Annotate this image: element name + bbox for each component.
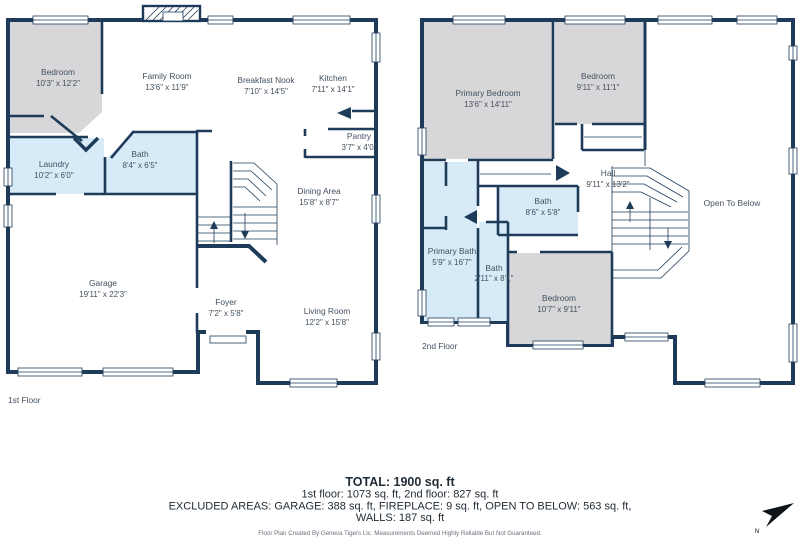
room-label: Dining Area <box>297 186 341 196</box>
room-dims: 8'6" x 5'8" <box>526 208 561 217</box>
front-door-opening <box>206 328 246 336</box>
room-label: Foyer <box>215 297 237 307</box>
walls-area-text: WALLS: 187 sq. ft <box>356 512 444 524</box>
area-summary: TOTAL: 1900 sq. ft 1st floor: 1073 sq. f… <box>169 475 632 537</box>
room-dims: 7'11" x 14'1" <box>311 85 354 94</box>
room-dims: 9'11" x 13'2" <box>586 180 629 189</box>
room-label: Kitchen <box>319 73 347 83</box>
room-dims: 13'6" x 11'9" <box>145 83 188 92</box>
first-floor-label: 1st Floor <box>8 395 41 405</box>
room-label: Primary Bedroom <box>455 88 520 98</box>
second-floor-label: 2nd Floor <box>422 341 458 351</box>
room-label: Garage <box>89 278 117 288</box>
room-label: Laundry <box>39 159 70 169</box>
door-arrow-kitchen <box>337 107 351 119</box>
front-step <box>210 336 246 343</box>
room-dims: 5'9" x 16'7" <box>432 258 472 267</box>
room-dims: 15'8" x 8'7" <box>299 198 339 207</box>
floor-plan-page: Bedroom 10'3" x 12'2" Family Room 13'6" … <box>0 0 800 542</box>
first-floor-plan: Bedroom 10'3" x 12'2" Family Room 13'6" … <box>4 6 380 405</box>
total-area-text: TOTAL: 1900 sq. ft <box>345 475 455 489</box>
floor-plan-canvas: Bedroom 10'3" x 12'2" Family Room 13'6" … <box>0 0 800 542</box>
room-dims: 12'2" x 15'8" <box>305 318 349 327</box>
room-label: Bath <box>131 149 149 159</box>
room-label: Family Room <box>142 71 191 81</box>
room-dims: 10'3" x 12'2" <box>36 79 80 88</box>
room-dims: 7'2" x 5'8" <box>209 309 244 318</box>
door-arrow-closet <box>556 165 570 181</box>
room-label: Pantry <box>347 131 372 141</box>
room-label: Bedroom <box>542 293 576 303</box>
room-dims: 13'6" x 14'11" <box>464 100 512 109</box>
second-floor-plan: Primary Bedroom 13'6" x 14'11" Bedroom 9… <box>418 16 797 387</box>
room-label: Bath <box>534 196 552 206</box>
credit-text: Floor Plan Created By Geneva Tigers Llc.… <box>258 530 542 537</box>
north-label: N <box>755 528 760 535</box>
room-dims: 9'11" x 11'1" <box>577 83 620 92</box>
room-primary-bath <box>424 162 477 321</box>
room-dims: 7'10" x 14'5" <box>244 87 288 96</box>
room-label: Breakfast Nook <box>237 75 295 85</box>
north-arrow-icon: N <box>755 503 794 535</box>
stairwell-1f <box>198 133 277 246</box>
room-label: Bedroom <box>581 71 615 81</box>
room-label: Bath <box>485 263 503 273</box>
excluded-areas-text: EXCLUDED AREAS: GARAGE: 388 sq. ft, FIRE… <box>169 501 632 513</box>
room-dims: 8'4" x 6'5" <box>123 161 158 170</box>
fireplace <box>143 6 200 21</box>
stair-base-wall-1f <box>196 246 266 262</box>
room-label: Primary Bath <box>428 246 477 256</box>
room-dims: 2'11" x 8'1" <box>475 274 514 283</box>
room-dims: 10'2" x 6'0" <box>34 171 74 180</box>
room-dims: 3'7" x 4'0" <box>342 143 377 152</box>
room-label: Bedroom <box>41 67 75 77</box>
room-dims: 19'11" x 22'3" <box>79 290 127 299</box>
room-label: Hall <box>601 168 616 178</box>
room-label: Open To Below <box>704 198 762 208</box>
floor-areas-text: 1st floor: 1073 sq. ft, 2nd floor: 827 s… <box>302 489 499 501</box>
room-label: Living Room <box>304 306 351 316</box>
room-dims: 10'7" x 9'11" <box>537 305 580 314</box>
